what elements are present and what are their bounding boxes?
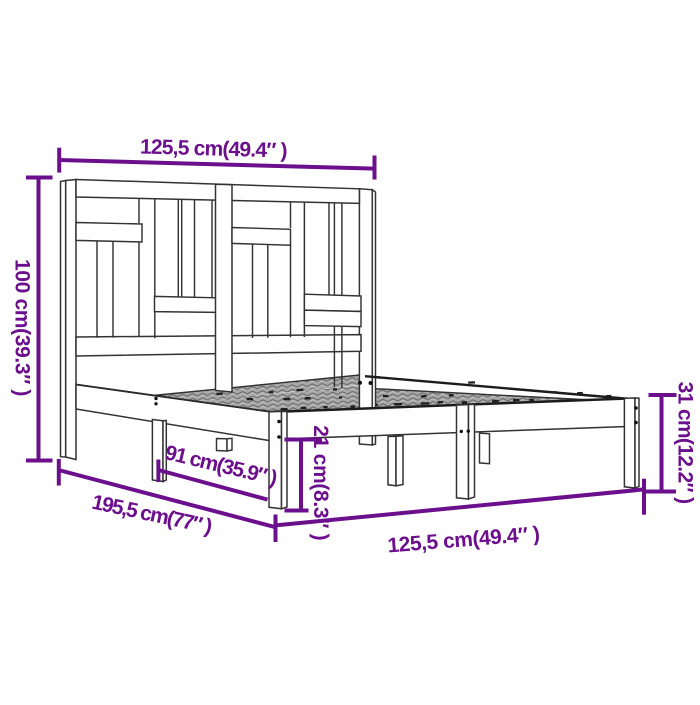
svg-text:125,5 cm(49.4″ ): 125,5 cm(49.4″ ) — [140, 135, 287, 162]
svg-text:100 cm(39.3″ ): 100 cm(39.3″ ) — [11, 259, 34, 396]
svg-text:31 cm(12.2″ ): 31 cm(12.2″ ) — [674, 382, 697, 504]
